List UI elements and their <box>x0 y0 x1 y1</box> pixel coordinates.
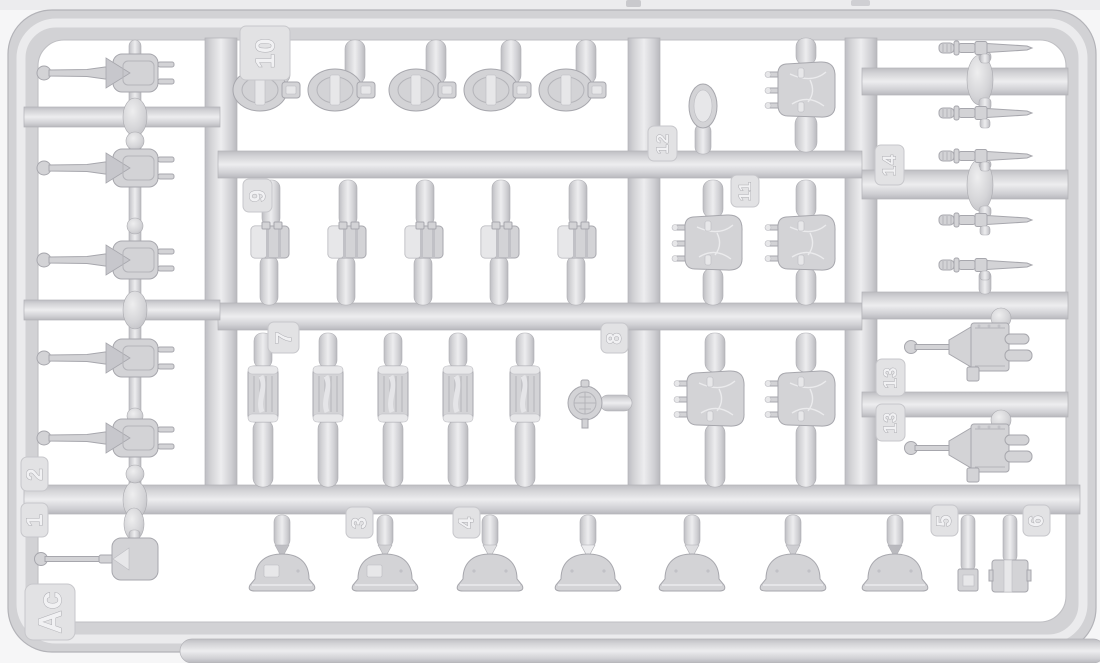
runner <box>796 424 816 487</box>
helmet-side-plate-1 <box>264 565 279 577</box>
runner <box>260 256 278 305</box>
stub <box>274 515 290 547</box>
tag-3-label: 3 <box>348 516 371 529</box>
tag-8: 8 <box>601 323 628 353</box>
sprue-photo: 10 9 7 8 12 11 14 13 <box>0 0 1100 663</box>
runner <box>796 38 816 65</box>
part-gas-canister-1 <box>248 366 278 422</box>
stub <box>1003 515 1017 562</box>
rail-vertical-1 <box>205 38 237 488</box>
runner <box>449 333 467 368</box>
tag-11-label: 11 <box>736 181 755 201</box>
rail-left-1 <box>24 107 220 127</box>
tag-6: 6 <box>1023 505 1050 536</box>
part-flat-oval-lid <box>689 84 717 128</box>
tag-9-label: 9 <box>245 189 270 202</box>
part-small-box <box>958 569 978 591</box>
tag-6-label: 6 <box>1025 514 1048 527</box>
runner <box>703 268 723 305</box>
stub <box>684 515 700 547</box>
chain-ball-4 <box>126 465 144 483</box>
part-gas-canister-4 <box>443 366 473 422</box>
top-light-band <box>0 0 1100 10</box>
tag-5: 5 <box>931 505 958 536</box>
chain-ball-2 <box>127 218 143 234</box>
rail-left-2 <box>24 300 220 320</box>
top-edge-mark-1 <box>626 0 641 7</box>
stub <box>961 515 975 571</box>
rail-h1 <box>218 151 862 178</box>
runner <box>569 180 587 226</box>
tag-8-label: 8 <box>603 332 626 345</box>
tag-4-label: 4 <box>455 516 478 529</box>
tag-13-upper: 13 <box>876 359 905 396</box>
part-pouch-5 <box>558 222 596 258</box>
chain-ball-1 <box>126 132 144 150</box>
part-pouch-2 <box>328 222 366 258</box>
part-gas-canister-2 <box>313 366 343 422</box>
part-pouch-1 <box>251 222 289 258</box>
runner <box>796 333 816 372</box>
tag-2-label: 2 <box>22 467 47 480</box>
bottom-bar <box>180 639 1100 663</box>
tag-7-label: 7 <box>271 331 296 344</box>
runner <box>339 180 357 226</box>
runner <box>253 420 273 487</box>
runner <box>319 333 337 368</box>
part-pouch-3 <box>405 222 443 258</box>
runner <box>795 114 817 152</box>
part8-runner <box>600 395 632 411</box>
rail-vertical-3 <box>845 38 877 488</box>
part-drum-canister <box>989 560 1031 592</box>
rail-right-1 <box>862 68 1068 95</box>
rail-vertical-2 <box>628 38 660 488</box>
runner <box>796 180 816 218</box>
tag-11: 11 <box>731 175 759 207</box>
tag-10-label: 10 <box>250 38 280 69</box>
sprue-svg: 10 9 7 8 12 11 14 13 <box>0 0 1100 663</box>
part-pouch-4 <box>481 222 519 258</box>
runner <box>384 333 402 368</box>
tag-13-upper-label: 13 <box>881 366 901 388</box>
helmet-side-plate-2 <box>367 565 382 577</box>
runner <box>705 333 725 372</box>
tag-12: 12 <box>648 126 677 161</box>
rail-right-3 <box>862 292 1068 319</box>
tag-9: 9 <box>243 179 272 212</box>
rail-main-lower <box>24 485 1080 514</box>
stub <box>580 515 596 547</box>
part-gas-canister-3 <box>378 366 408 422</box>
tag-1: 1 <box>21 503 48 537</box>
rail-h2 <box>218 303 862 330</box>
top-edge-mark-2 <box>851 0 870 6</box>
runner <box>796 268 816 305</box>
stub <box>785 515 801 547</box>
tag-1-label: 1 <box>22 513 47 526</box>
part-gas-canister-5 <box>510 366 540 422</box>
tag-12-label: 12 <box>653 133 672 154</box>
tag-2: 2 <box>21 457 48 491</box>
stub <box>887 515 903 547</box>
tag-ac-label: Ac <box>32 591 68 634</box>
runner <box>448 420 468 487</box>
runner <box>414 256 432 305</box>
tag-13-lower-label: 13 <box>881 411 901 433</box>
tag-4: 4 <box>453 507 480 538</box>
runner <box>516 333 534 368</box>
runner <box>416 180 434 226</box>
runner <box>515 420 535 487</box>
runner <box>705 424 725 487</box>
stub <box>482 515 498 547</box>
chain-blob-1 <box>123 98 147 136</box>
runner <box>337 256 355 305</box>
runner <box>703 180 723 218</box>
tag-13-lower: 13 <box>876 404 905 441</box>
tag-14-label: 14 <box>880 154 900 176</box>
runner <box>492 180 510 226</box>
tag-ac: Ac <box>25 584 75 640</box>
runner <box>383 420 403 487</box>
chain-blob-2 <box>123 291 147 329</box>
tag-5-label: 5 <box>933 514 956 527</box>
tag-3: 3 <box>346 507 373 538</box>
tag-10: 10 <box>240 26 290 80</box>
tag-14: 14 <box>875 145 904 185</box>
runner <box>567 256 585 305</box>
runner <box>490 256 508 305</box>
runner <box>318 420 338 487</box>
stub <box>377 515 393 547</box>
tag-7: 7 <box>268 322 299 353</box>
